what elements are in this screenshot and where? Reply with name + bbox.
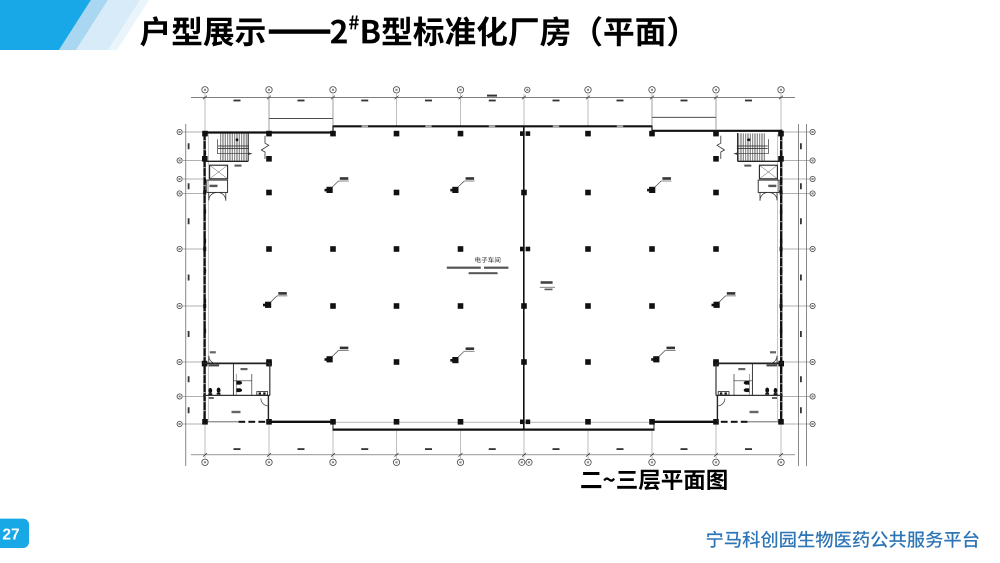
svg-text:27: 27	[2, 527, 19, 544]
